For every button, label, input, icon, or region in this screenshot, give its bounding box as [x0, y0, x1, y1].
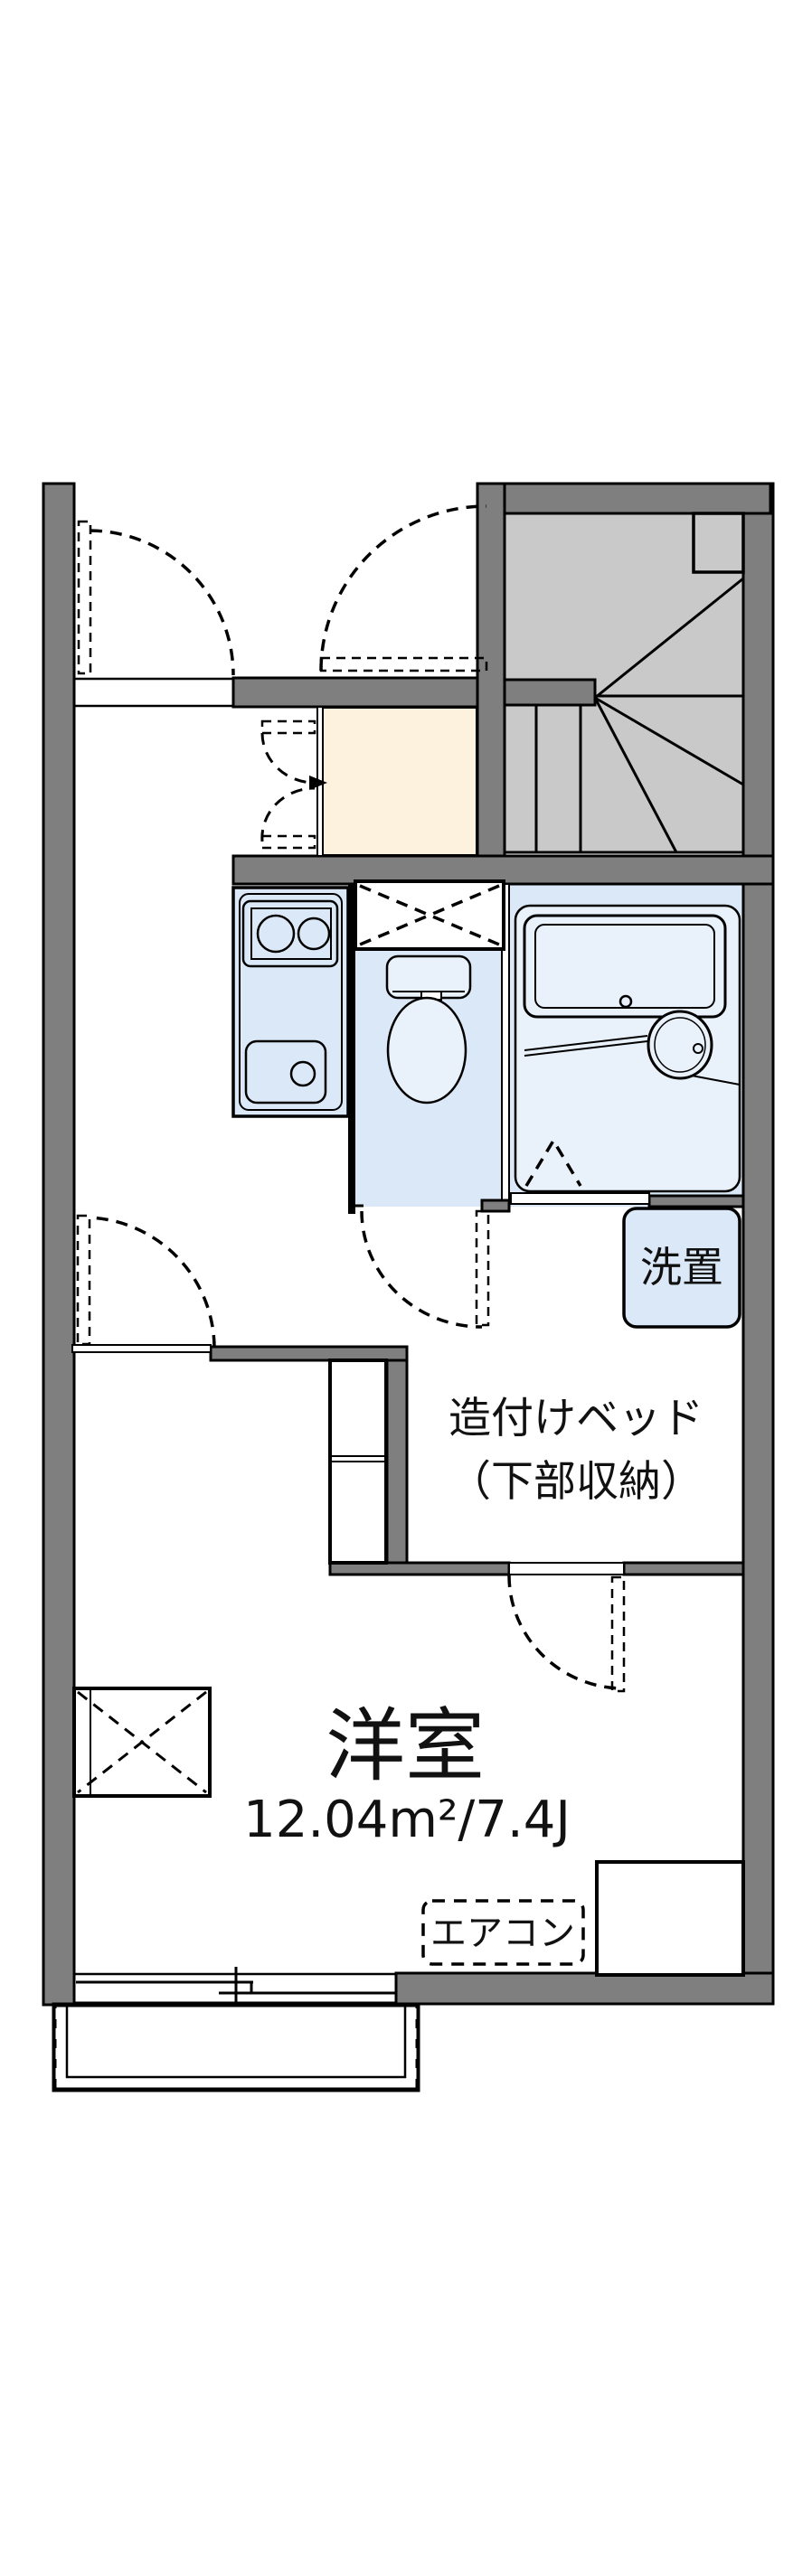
genkan-floor: [318, 707, 477, 856]
bed-label-line1: 造付けベッド: [448, 1394, 703, 1443]
left-outer-wall: [43, 484, 74, 2005]
toilet-door-stub: [482, 1200, 509, 1211]
bed-label-line2: （下部収納）: [448, 1457, 703, 1507]
stair-stub-wall: [505, 680, 595, 705]
stair-top-landing: [694, 513, 743, 572]
laundry-label: 洗置: [640, 1243, 723, 1292]
hall-bed-wall: [211, 1347, 407, 1360]
toilet-icon: [387, 956, 470, 1103]
stair-left-wall: [477, 484, 505, 856]
balcony: [54, 2005, 418, 2090]
right-outer-wall: [743, 484, 773, 2004]
storage-x-box: [355, 881, 504, 949]
bath-bottom-wall: [649, 1196, 743, 1207]
ac-label: エアコン: [430, 1913, 575, 1954]
bed-door-threshold: [509, 1563, 624, 1575]
floorplan-svg: 洗置 造付けベッド （下部収納） 洋室 12.04m²/7.4J エアコン: [0, 0, 812, 2576]
room-area-label: 12.04m²/7.4J: [243, 1791, 571, 1849]
laundry-box: 洗置: [624, 1208, 740, 1327]
bed-left-wall: [387, 1360, 407, 1575]
room-name-label: 洋室: [326, 1699, 485, 1792]
bottom-outer-wall: [396, 1973, 773, 2004]
bed-bottom-wall-right: [624, 1563, 743, 1575]
room-window-box: [74, 1688, 210, 1796]
entrance-wall: [233, 678, 477, 707]
room-counter: [597, 1862, 743, 1975]
stair-top-wall: [477, 484, 770, 513]
ac-box: エアコン: [423, 1901, 583, 1964]
kitchen-counter: [233, 888, 348, 1116]
floorplan-page: 洗置 造付けベッド （下部収納） 洋室 12.04m²/7.4J エアコン: [0, 0, 812, 2576]
bath-door-threshold: [511, 1193, 649, 1204]
room-door-threshold: [72, 1345, 211, 1352]
